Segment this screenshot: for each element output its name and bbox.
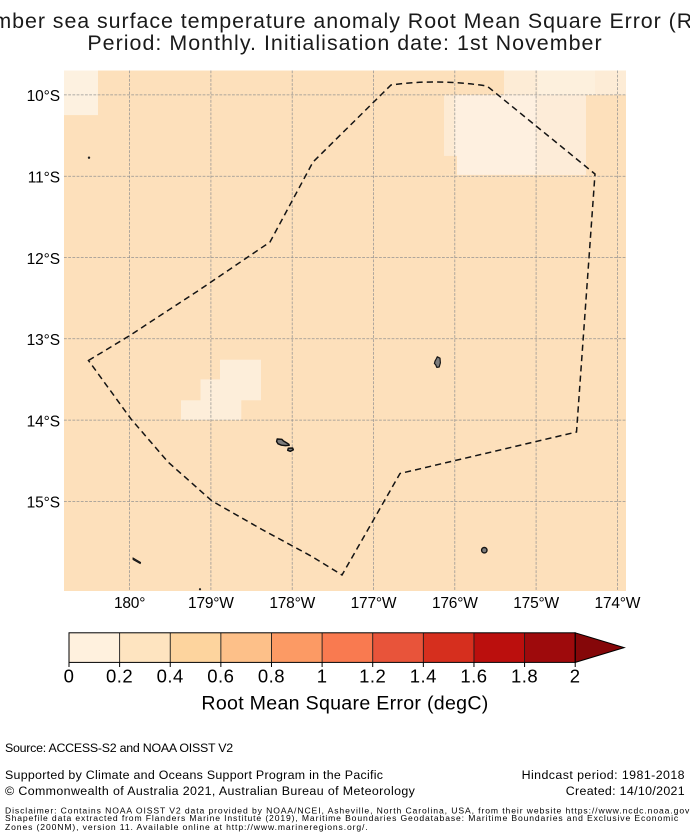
svg-text:179°W: 179°W (188, 595, 234, 612)
svg-text:0.4: 0.4 (157, 666, 184, 687)
svg-text:Root Mean Square Error (degC): Root Mean Square Error (degC) (201, 693, 488, 715)
svg-text:174°W: 174°W (595, 595, 641, 612)
svg-text:180°: 180° (114, 595, 145, 612)
svg-text:177°W: 177°W (351, 595, 397, 612)
svg-text:2: 2 (570, 666, 581, 687)
svg-text:175°W: 175°W (513, 595, 559, 612)
svg-text:Source: ACCESS-S2 and NOAA OIS: Source: ACCESS-S2 and NOAA OISST V2 (5, 741, 233, 755)
svg-text:11°S: 11°S (28, 170, 60, 187)
svg-text:14°S: 14°S (27, 413, 60, 430)
svg-text:Supported by Climate and Ocean: Supported by Climate and Oceans Support … (5, 768, 383, 782)
svg-text:November sea surface temperatu: November sea surface temperature anomaly… (0, 9, 690, 33)
svg-text:1.8: 1.8 (511, 666, 538, 687)
svg-text:178°W: 178°W (269, 595, 315, 612)
svg-text:1.6: 1.6 (460, 666, 487, 687)
svg-text:Period: Monthly. Initialisatio: Period: Monthly. Initialisation date: 1s… (87, 31, 602, 55)
svg-text:12°S: 12°S (27, 251, 60, 268)
svg-text:0.8: 0.8 (258, 666, 285, 687)
svg-text:Zones (200NM), version 11. Ava: Zones (200NM), version 11. Available onl… (5, 822, 369, 832)
svg-text:1.2: 1.2 (359, 666, 386, 687)
svg-text:0.2: 0.2 (106, 666, 133, 687)
svg-text:15°S: 15°S (27, 495, 60, 512)
svg-text:13°S: 13°S (27, 332, 60, 349)
svg-text:1.4: 1.4 (410, 666, 437, 687)
svg-text:176°W: 176°W (432, 595, 478, 612)
svg-text:0: 0 (64, 666, 75, 687)
svg-text:0.6: 0.6 (207, 666, 234, 687)
svg-text:10°S: 10°S (27, 88, 60, 105)
svg-text:Created: 14/10/2021: Created: 14/10/2021 (566, 784, 685, 798)
svg-text:© Commonwealth of Australia 20: © Commonwealth of Australia 2021, Austra… (5, 784, 416, 798)
svg-text:1: 1 (317, 666, 328, 687)
svg-text:Hindcast period: 1981-2018: Hindcast period: 1981-2018 (522, 768, 685, 782)
